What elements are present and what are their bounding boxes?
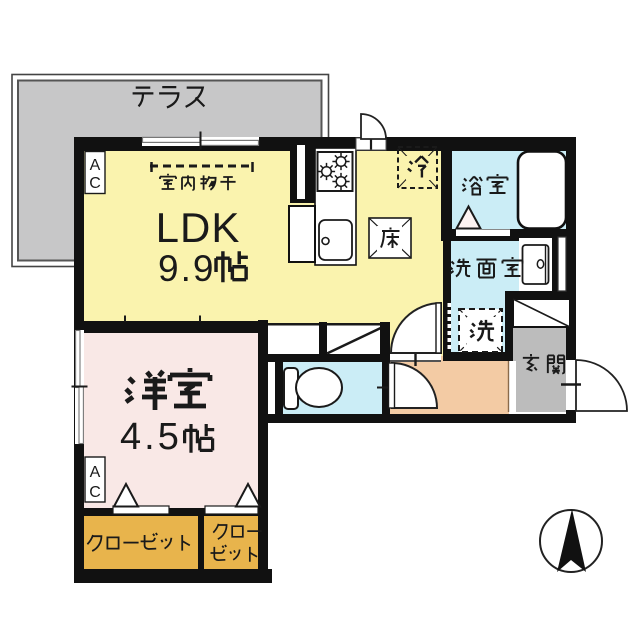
svg-text:C: C (89, 175, 101, 192)
svg-text:A: A (90, 157, 101, 174)
svg-text:LDK: LDK (156, 204, 241, 251)
svg-text:A: A (90, 464, 101, 481)
svg-text:C: C (89, 484, 101, 501)
svg-text:4.5: 4.5 (120, 416, 182, 458)
svg-text:9.9: 9.9 (158, 248, 215, 289)
